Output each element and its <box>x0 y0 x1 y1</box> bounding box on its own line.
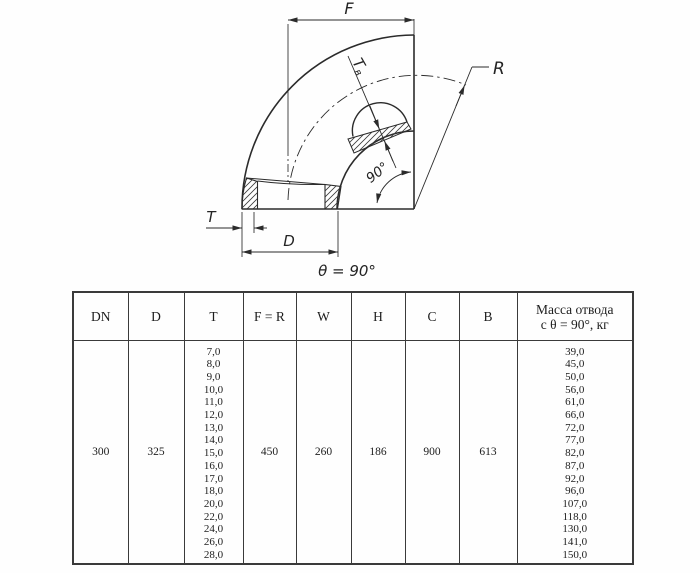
cell-fr: 450 <box>243 341 296 565</box>
t-value: 9,0 <box>185 371 243 384</box>
angle-annotation: 90° <box>363 159 411 203</box>
t-value: 14,0 <box>185 434 243 447</box>
dim-d-label: D <box>283 232 295 250</box>
dimension-f: F <box>288 0 414 182</box>
header-h: H <box>351 292 405 341</box>
t-value: 17,0 <box>185 473 243 486</box>
header-c: C <box>405 292 459 341</box>
mass-value: 141,0 <box>518 536 633 549</box>
header-mass: Масса отвода с θ = 90°, кг <box>517 292 633 341</box>
mass-value: 82,0 <box>518 447 633 460</box>
header-mass-line2: с θ = 90°, кг <box>518 317 633 332</box>
mass-value: 45,0 <box>518 358 633 371</box>
t-value: 20,0 <box>185 498 243 511</box>
mass-value: 56,0 <box>518 384 633 397</box>
t-value: 16,0 <box>185 460 243 473</box>
cell-h: 186 <box>351 341 405 565</box>
cell-w: 260 <box>296 341 351 565</box>
mass-value: 150,0 <box>518 549 633 562</box>
mass-value: 66,0 <box>518 409 633 422</box>
t-value: 12,0 <box>185 409 243 422</box>
table-data-row: 300 325 7,08,09,010,011,012,013,014,015,… <box>73 341 633 565</box>
dimension-d: D <box>242 211 338 257</box>
mass-value: 77,0 <box>518 434 633 447</box>
t-value: 7,0 <box>185 346 243 359</box>
dim-r-label: R <box>493 59 505 79</box>
catalog-page: F R 90° Tв T <box>0 0 700 573</box>
elbow-technical-drawing: F R 90° Tв T <box>0 0 700 285</box>
cell-dn: 300 <box>73 341 128 565</box>
dimension-r: R <box>414 59 505 209</box>
header-w: W <box>296 292 351 341</box>
header-b: B <box>459 292 517 341</box>
header-dn: DN <box>73 292 128 341</box>
dimensions-table: DN D T F = R W H C B Масса отвода с θ = … <box>72 291 632 565</box>
header-t: T <box>184 292 243 341</box>
t-value: 15,0 <box>185 447 243 460</box>
dim-t-label: T <box>206 208 217 226</box>
table-header-row: DN D T F = R W H C B Масса отвода с θ = … <box>73 292 633 341</box>
dimension-t: T <box>206 208 267 233</box>
drawing-caption: θ = 90° <box>318 262 376 280</box>
mass-value: 50,0 <box>518 371 633 384</box>
bottom-right-wall-section <box>325 185 341 210</box>
mass-value: 92,0 <box>518 473 633 486</box>
t-value: 13,0 <box>185 422 243 435</box>
mass-value: 72,0 <box>518 422 633 435</box>
mass-value: 39,0 <box>518 346 633 359</box>
t-value: 11,0 <box>185 396 243 409</box>
mass-value: 118,0 <box>518 511 633 524</box>
mass-value: 87,0 <box>518 460 633 473</box>
cell-c: 900 <box>405 341 459 565</box>
cell-d: 325 <box>128 341 184 565</box>
mass-value: 61,0 <box>518 396 633 409</box>
t-value: 24,0 <box>185 523 243 536</box>
header-d: D <box>128 292 184 341</box>
t-value: 8,0 <box>185 358 243 371</box>
mass-value: 96,0 <box>518 485 633 498</box>
cell-t-list: 7,08,09,010,011,012,013,014,015,016,017,… <box>184 341 243 565</box>
t-value: 26,0 <box>185 536 243 549</box>
cell-mass-list: 39,045,050,056,061,066,072,077,082,087,0… <box>517 341 633 565</box>
t-value: 28,0 <box>185 549 243 562</box>
dim-tv-label: Tв <box>347 55 372 78</box>
header-mass-line1: Масса отвода <box>518 302 633 317</box>
header-fr: F = R <box>243 292 296 341</box>
t-value: 18,0 <box>185 485 243 498</box>
t-value: 22,0 <box>185 511 243 524</box>
mass-value: 107,0 <box>518 498 633 511</box>
mass-value: 130,0 <box>518 523 633 536</box>
t-value: 10,0 <box>185 384 243 397</box>
cell-b: 613 <box>459 341 517 565</box>
dim-f-label: F <box>344 0 354 18</box>
